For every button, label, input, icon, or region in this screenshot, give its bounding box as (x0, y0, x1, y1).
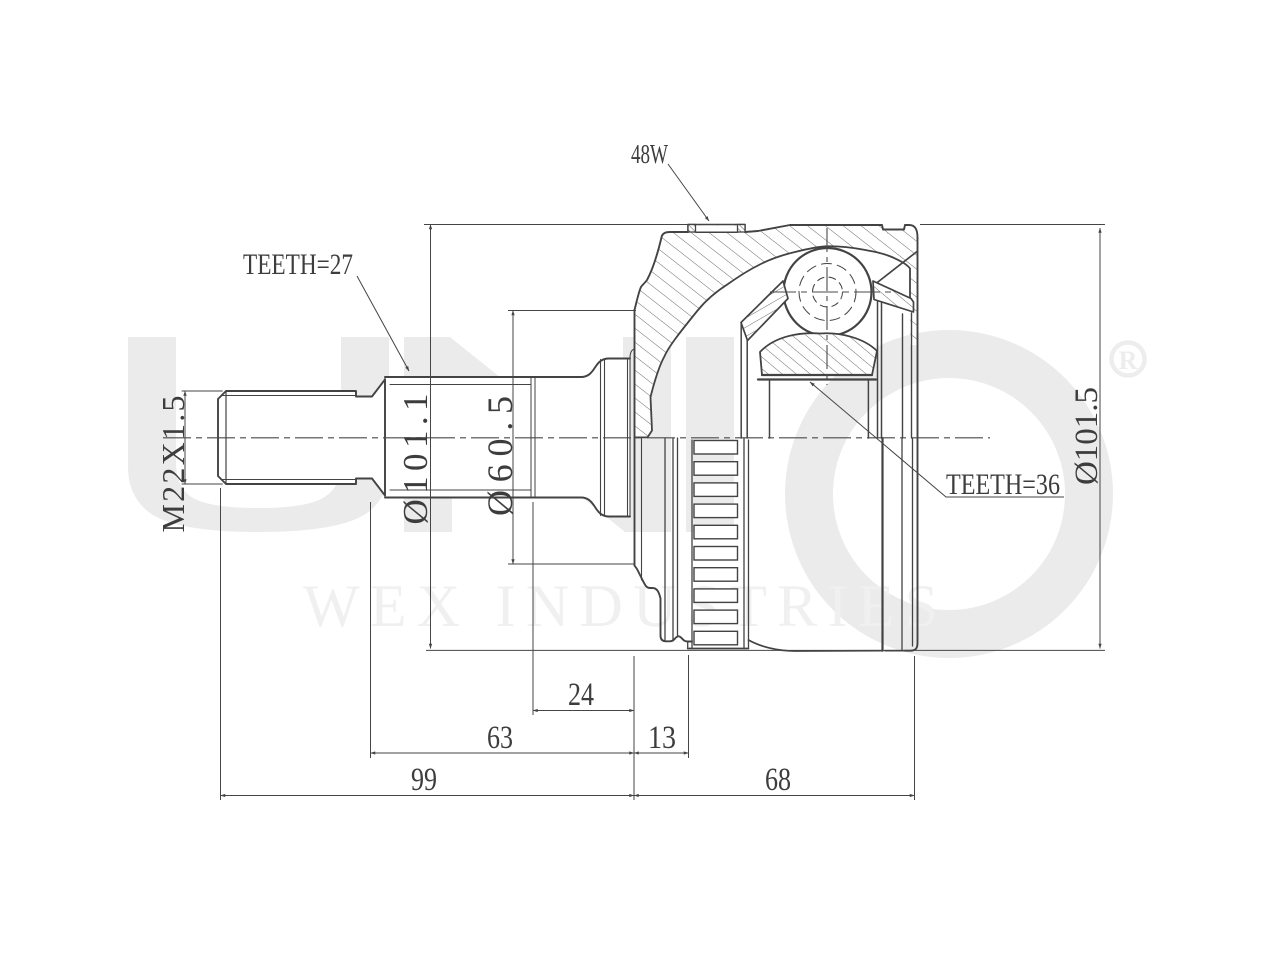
svg-text:M22X1.5: M22X1.5 (155, 396, 191, 533)
svg-text:Ø101.5: Ø101.5 (1069, 387, 1105, 485)
svg-text:99: 99 (411, 762, 437, 798)
svg-text:WEX INDUSTRIES: WEX INDUSTRIES (303, 573, 945, 639)
svg-text:63: 63 (487, 720, 513, 756)
svg-text:Ø60.5: Ø60.5 (480, 396, 520, 516)
svg-text:TEETH=36: TEETH=36 (946, 468, 1060, 501)
svg-text:24: 24 (568, 677, 594, 713)
svg-text:68: 68 (765, 762, 791, 798)
svg-text:13: 13 (648, 720, 676, 756)
svg-text:TEETH=27: TEETH=27 (243, 248, 353, 281)
svg-text:R: R (1119, 346, 1138, 375)
svg-text:48W: 48W (631, 139, 668, 169)
